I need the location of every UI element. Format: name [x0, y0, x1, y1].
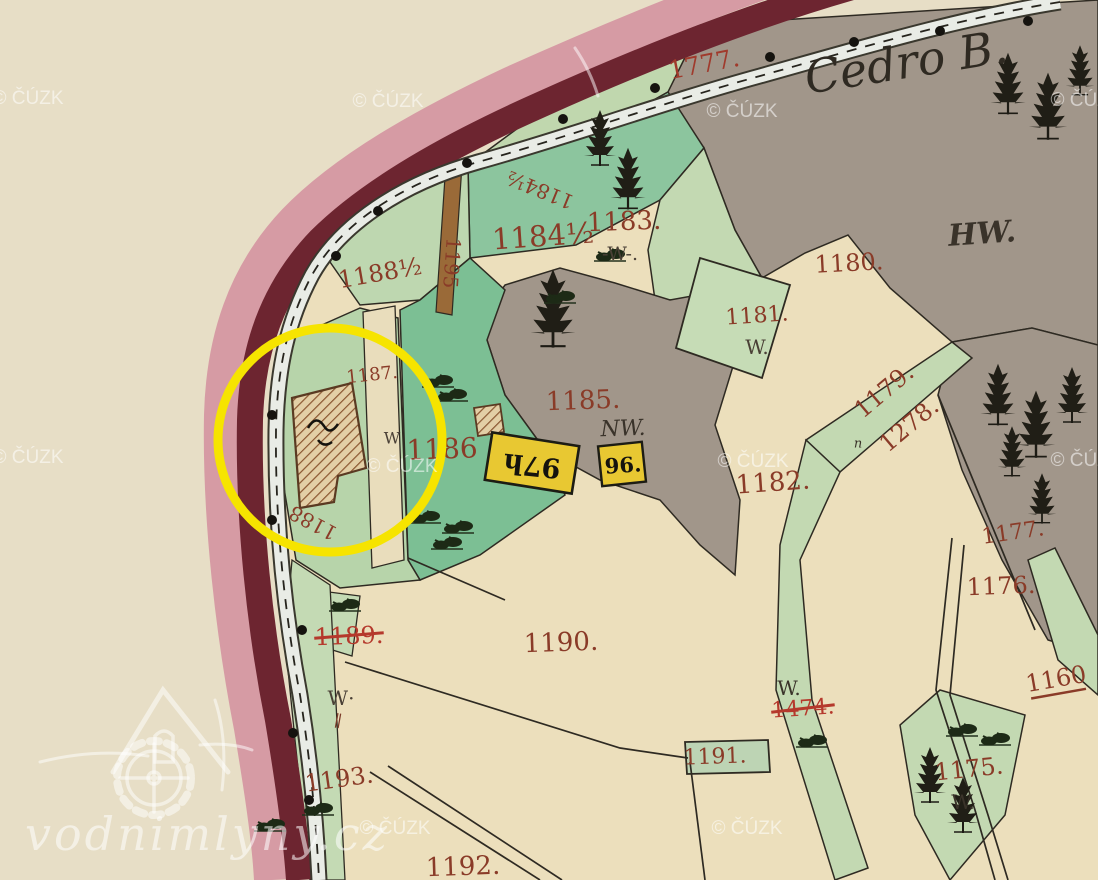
- vodnimlyny-logo-text: vodnimlyny.cz: [25, 807, 390, 861]
- boundary-stone-dot: [558, 114, 568, 124]
- parcel-label-1190: 1190.: [523, 627, 598, 660]
- cuzk-watermark: © ČÚZK: [0, 446, 64, 468]
- parcel-label-1183: 1183.: [586, 206, 661, 239]
- svg-text:W: W: [384, 429, 401, 448]
- svg-text:1192.: 1192.: [425, 851, 500, 880]
- cuzk-watermark: © ČÚZK: [1051, 449, 1098, 471]
- map-screenshot: Cedro B.1777.HW.1184½1184½1183.-W-.1188½…: [0, 0, 1098, 880]
- svg-text:W·: W·: [328, 686, 355, 710]
- boundary-stone-dot: [650, 83, 660, 93]
- svg-text:96.: 96.: [604, 451, 642, 478]
- parcel-label-1181: 1181.: [725, 301, 790, 330]
- cuzk-watermark: © ČÚZK: [353, 90, 424, 112]
- svg-text:W.: W.: [951, 790, 974, 814]
- svg-text:1184½: 1184½: [491, 215, 595, 256]
- svg-text:97h: 97h: [502, 447, 562, 484]
- cuzk-watermark: © ČÚZK: [360, 817, 431, 839]
- landuse-w-1183: -W-.: [602, 243, 638, 265]
- building-number-96: 96.: [604, 451, 642, 478]
- svg-text:-W-.: -W-.: [602, 243, 638, 265]
- svg-text:1180.: 1180.: [814, 247, 884, 279]
- svg-text:1190.: 1190.: [523, 627, 598, 660]
- cuzk-watermark: © ČÚZK: [0, 87, 64, 109]
- outbuilding-hatched: [474, 404, 504, 436]
- parcel-label-1192: 1192.: [425, 851, 500, 880]
- cuzk-watermark: © ČÚZK: [712, 817, 783, 839]
- svg-text:1191.: 1191.: [683, 743, 747, 770]
- boundary-stone-dot: [331, 251, 341, 261]
- landuse-w-mill: W: [384, 429, 401, 448]
- svg-text:NW.: NW.: [599, 416, 646, 443]
- boundary-stone-dot: [267, 515, 277, 525]
- svg-text:1195: 1195: [438, 237, 465, 289]
- boundary-stone-dot: [1023, 16, 1033, 26]
- landuse-w-1190: W·: [328, 686, 355, 710]
- boundary-stone-dot: [267, 410, 277, 420]
- cuzk-watermark: © ČÚZK: [707, 100, 778, 122]
- landuse-hw: HW.: [946, 214, 1017, 254]
- svg-text:n: n: [854, 437, 862, 452]
- boundary-stone-dot: [765, 52, 775, 62]
- road-number-1195: 1195: [438, 237, 465, 289]
- svg-text:1183.: 1183.: [586, 206, 661, 239]
- building-number-97h: 97h: [502, 447, 562, 484]
- boundary-stone-dot: [288, 728, 298, 738]
- svg-text:W.: W.: [745, 335, 768, 359]
- parcel-label-1189-struck: 1189.: [314, 621, 385, 651]
- landuse-w-1181: W.: [745, 335, 768, 359]
- cuzk-watermark: © ČÚZK: [1051, 89, 1098, 111]
- cadastral-map-canvas: Cedro B.1777.HW.1184½1184½1183.-W-.1188½…: [0, 0, 1098, 880]
- parcel-label-1185: 1185.: [545, 385, 620, 418]
- boundary-stone-dot: [297, 625, 307, 635]
- cuzk-watermark: © ČÚZK: [718, 450, 789, 472]
- parcel-label-1176: 1176.: [966, 571, 1036, 601]
- landuse-w-1175: W.: [951, 790, 974, 814]
- boundary-stone-dot: [462, 158, 472, 168]
- cuzk-watermark: © ČÚZK: [367, 455, 438, 477]
- parcel-label-1184-half-b: 1184½: [491, 215, 595, 256]
- svg-text:HW.: HW.: [946, 214, 1017, 254]
- boundary-stone-dot: [373, 206, 383, 216]
- svg-text:1181.: 1181.: [725, 301, 790, 330]
- landuse-nw-1185: NW.: [599, 416, 646, 443]
- svg-text:1185.: 1185.: [545, 385, 620, 418]
- parcel-label-1191: 1191.: [683, 743, 747, 770]
- parcel-label-1474-struck: 1474.: [770, 694, 835, 723]
- svg-text:1176.: 1176.: [966, 571, 1036, 601]
- small-letter-n: n: [854, 437, 862, 452]
- parcel-label-1180: 1180.: [814, 247, 884, 279]
